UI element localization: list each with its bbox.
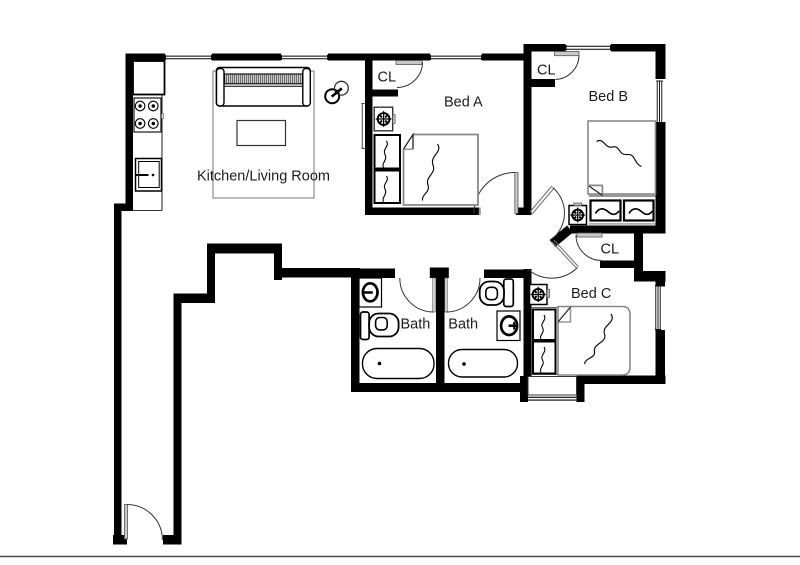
svg-text:CL: CL (378, 69, 397, 85)
svg-text:Bed C: Bed C (571, 286, 611, 302)
svg-text:CL: CL (601, 241, 620, 257)
svg-text:Bath: Bath (448, 317, 478, 333)
svg-text:CL: CL (537, 63, 556, 79)
svg-text:Bath: Bath (401, 317, 431, 333)
svg-text:Bed A: Bed A (444, 95, 483, 111)
svg-text:Kitchen/Living Room: Kitchen/Living Room (197, 169, 330, 185)
svg-text:Bed B: Bed B (589, 89, 629, 105)
